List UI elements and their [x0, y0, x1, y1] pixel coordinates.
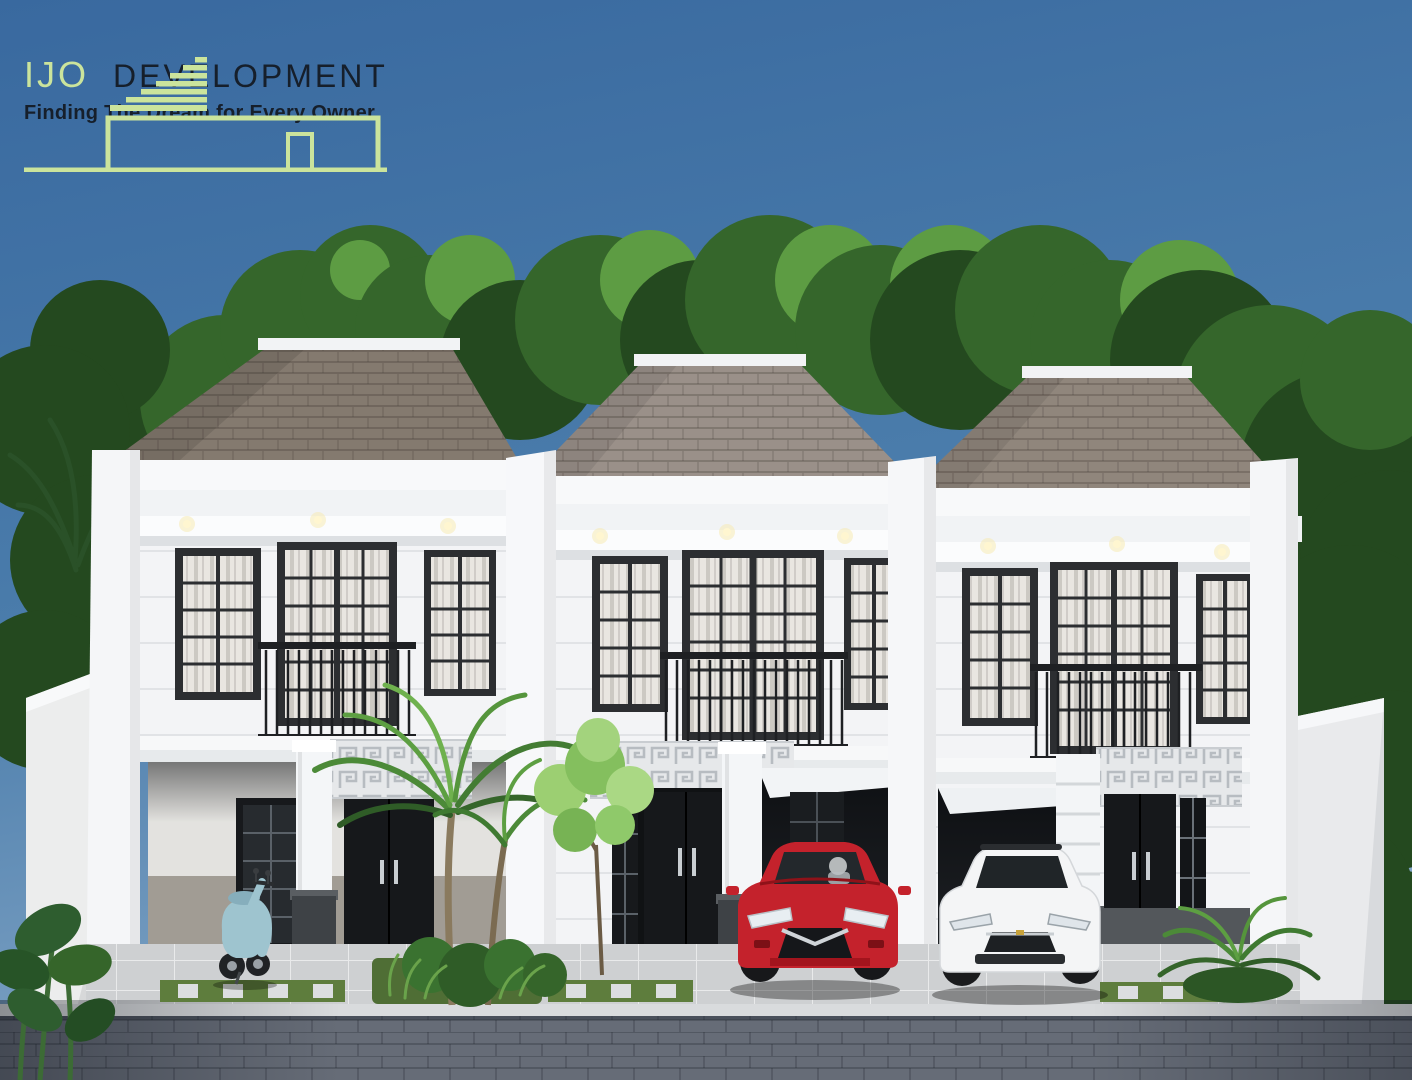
carport-interior-left [148, 740, 510, 966]
logo-house-mark [24, 52, 394, 172]
upper-window-left-1 [175, 548, 261, 700]
right-boundary-wall [1298, 698, 1384, 1030]
upper-window-right-2 [1196, 574, 1254, 724]
architectural-rendering: IJO DEVELOPMENT Finding The Dream for Ev… [0, 0, 1412, 1080]
company-logo: IJO DEVELOPMENT Finding The Dream for Ev… [24, 52, 424, 125]
upper-window-right-1 [962, 568, 1038, 726]
townhouse-unit-left [112, 338, 538, 966]
balcony-french-door-left [277, 542, 397, 726]
porch-column-left [290, 740, 338, 966]
upper-window-left-2 [424, 550, 496, 696]
roof-ridge-cap [258, 338, 460, 350]
upper-window-middle-1 [592, 556, 668, 712]
street-pavement [0, 1000, 1412, 1080]
